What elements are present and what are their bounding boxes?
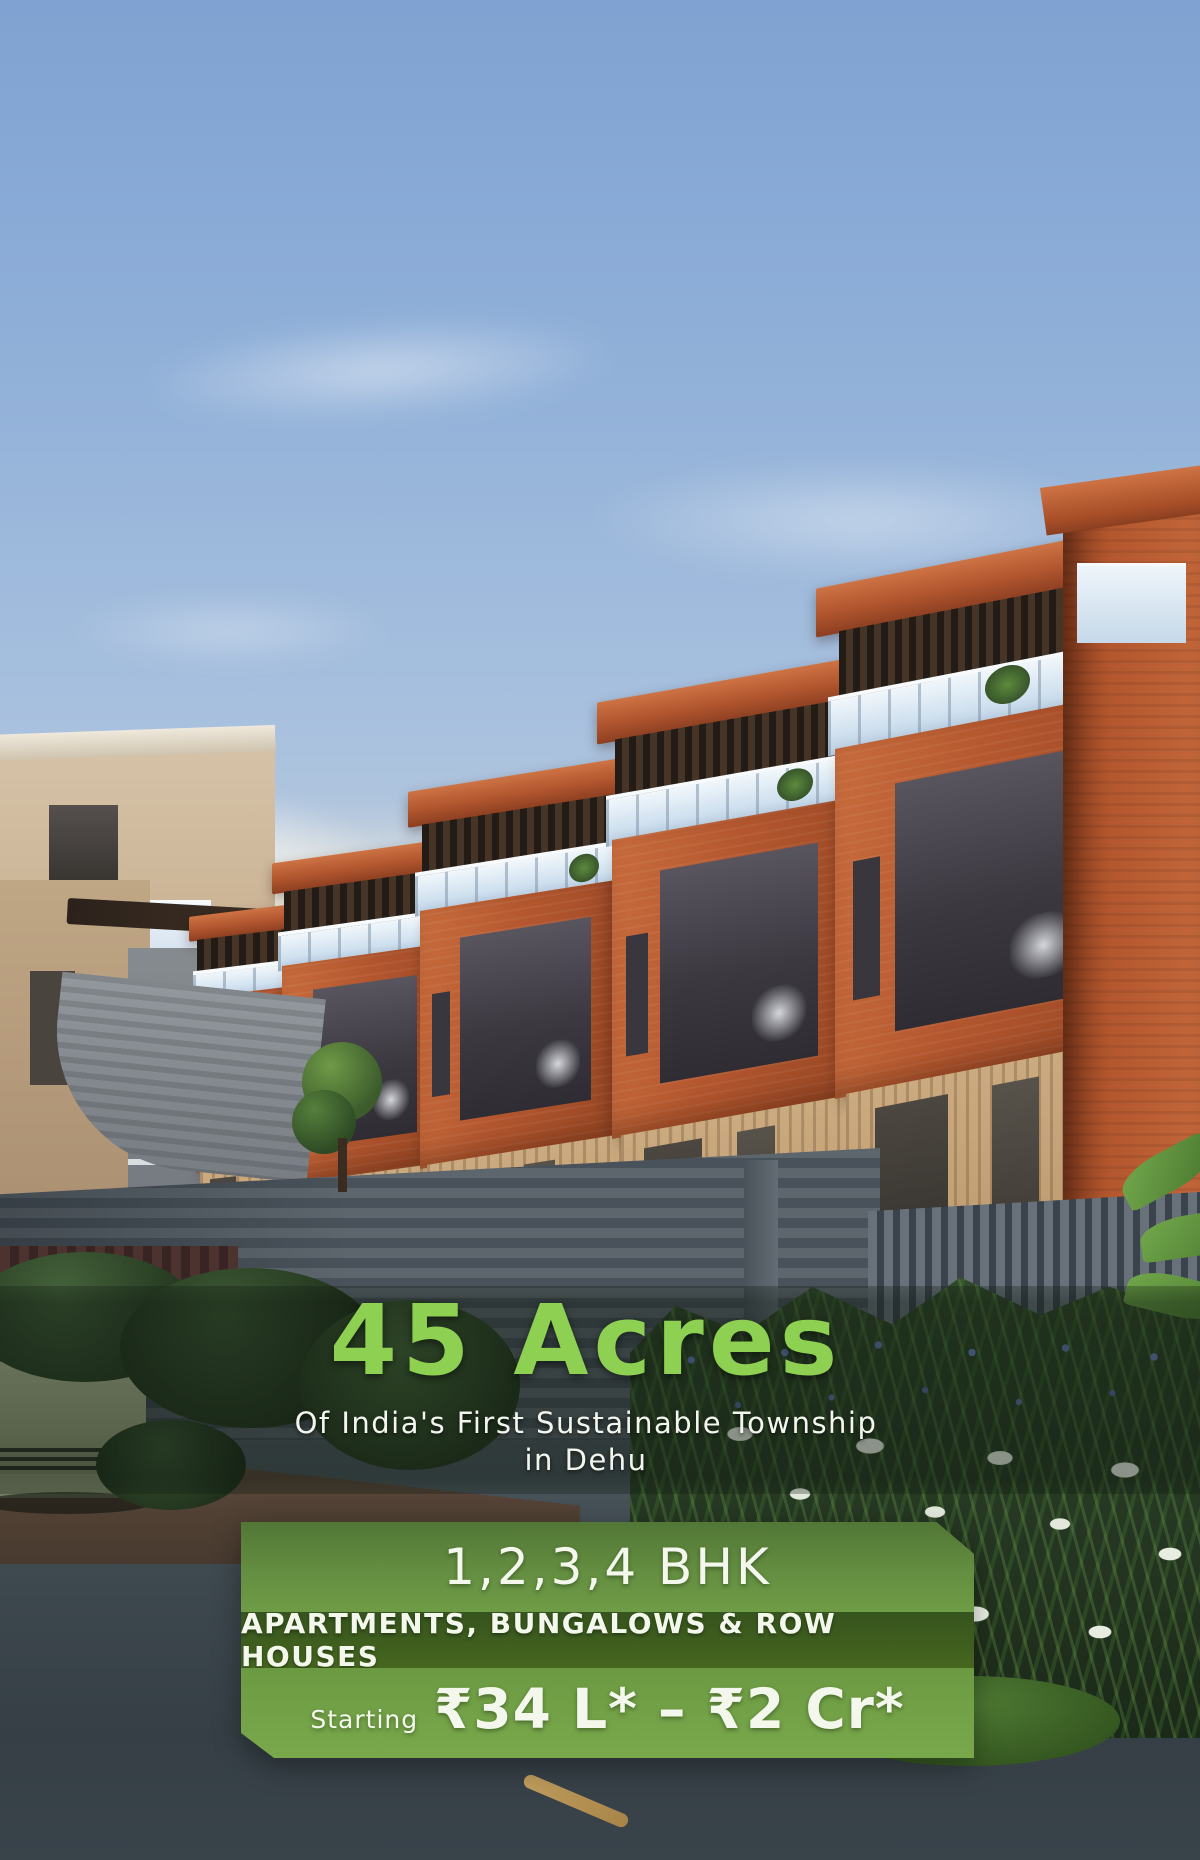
price-range-text: ₹34 L* – ₹2 Cr* xyxy=(434,1682,905,1737)
offer-banner: 1,2,3,4 BHK APARTMENTS, BUNGALOWS & ROW … xyxy=(241,1522,974,1758)
hero-text-group: 45 Acres Of India's First Sustainable To… xyxy=(0,1292,1186,1477)
price-row: Starting ₹34 L* – ₹2 Cr* xyxy=(241,1668,974,1758)
property-types-text: APARTMENTS, BUNGALOWS & ROW HOUSES xyxy=(241,1612,974,1668)
property-ad-image: 45 Acres Of India's First Sustainable To… xyxy=(0,0,1200,1860)
cloud xyxy=(60,590,400,670)
headline-45-acres: 45 Acres xyxy=(0,1292,1186,1389)
price-prefix-text: Starting xyxy=(310,1705,418,1734)
small-tree xyxy=(292,1042,402,1192)
headline-subtitle-line2: in Dehu xyxy=(0,1443,1186,1477)
bhk-configuration-text: 1,2,3,4 BHK xyxy=(241,1522,974,1612)
headline-subtitle-line1: Of India's First Sustainable Township xyxy=(0,1406,1186,1440)
